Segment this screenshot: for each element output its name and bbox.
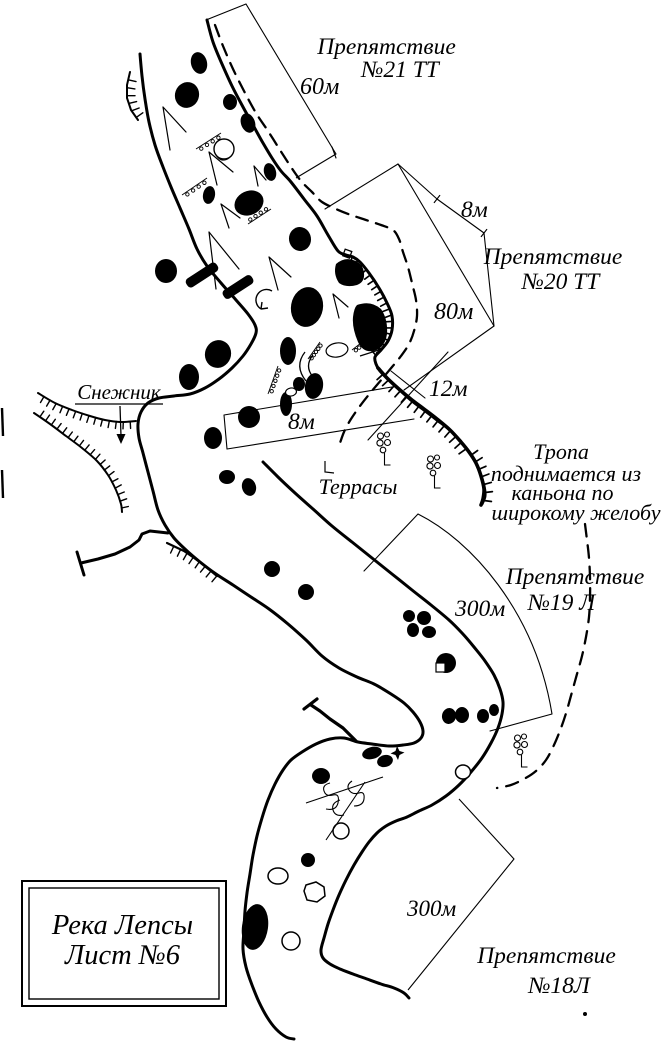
svg-text:8м: 8м xyxy=(288,409,315,435)
svg-text:Террасы: Террасы xyxy=(319,474,398,499)
svg-text:Препятствие: Препятствие xyxy=(505,564,645,590)
svg-text:Препятствие: Препятствие xyxy=(476,943,616,969)
svg-text:№19 Л: №19 Л xyxy=(527,590,597,616)
svg-text:Лист №6: Лист №6 xyxy=(64,940,181,971)
svg-text:60м: 60м xyxy=(300,74,339,100)
svg-text:Снежник: Снежник xyxy=(77,380,161,404)
svg-text:широкому желобу: широкому желобу xyxy=(491,500,660,525)
svg-text:№20 ТТ: №20 ТТ xyxy=(521,269,602,295)
svg-text:Река Лепсы: Река Лепсы xyxy=(51,910,193,941)
svg-text:№18Л: №18Л xyxy=(527,973,591,999)
svg-text:300м: 300м xyxy=(406,896,457,921)
svg-text:8м: 8м xyxy=(461,197,488,223)
svg-text:300м: 300м xyxy=(454,596,505,622)
svg-text:80м: 80м xyxy=(434,299,473,325)
svg-text:№21 ТТ: №21 ТТ xyxy=(360,57,441,83)
svg-text:12м: 12м xyxy=(429,376,468,402)
svg-text:Препятствие: Препятствие xyxy=(483,244,623,270)
